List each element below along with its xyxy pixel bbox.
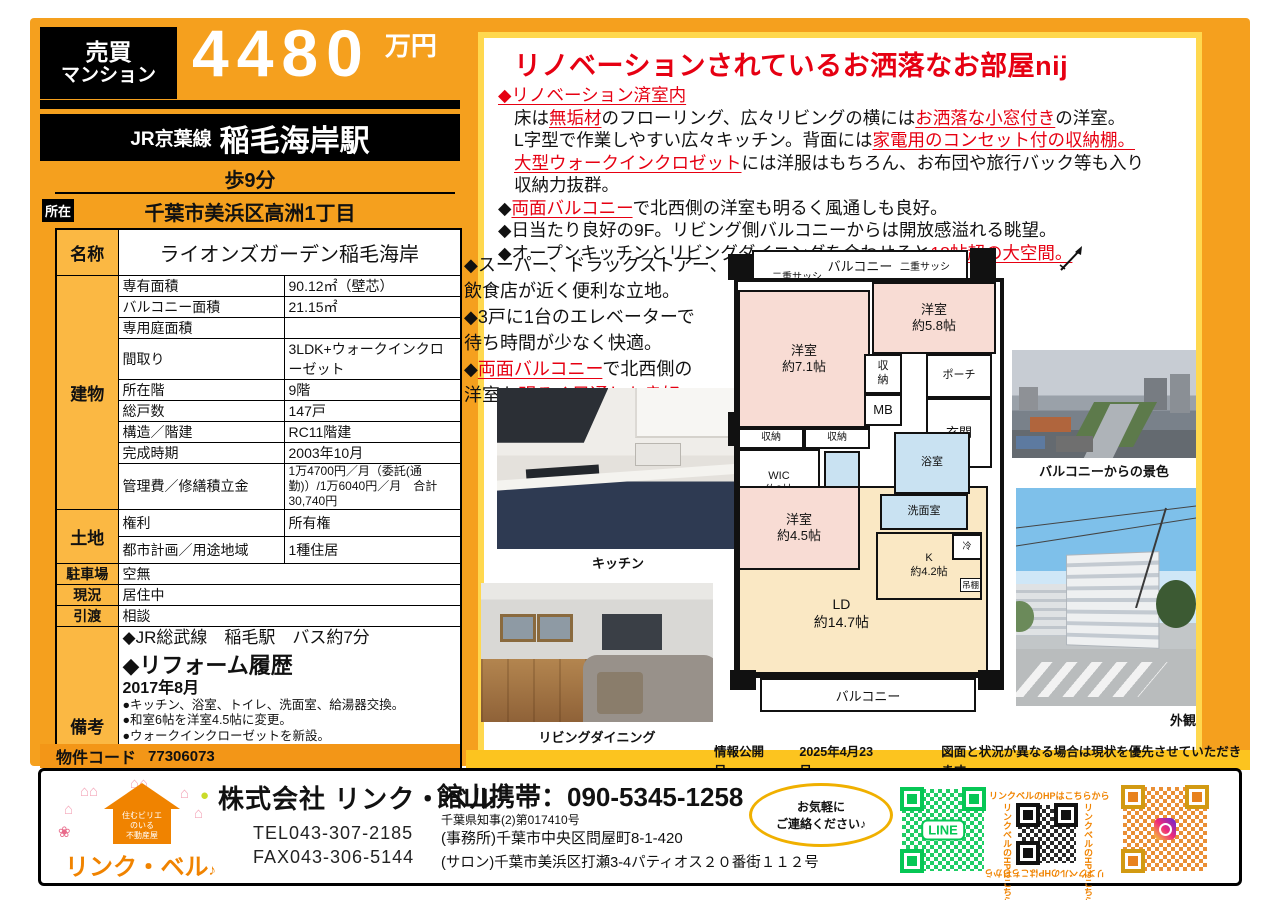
room-label: 洗面室: [908, 505, 941, 519]
property-code-band: 物件コード 77306073: [40, 744, 460, 768]
divider: [40, 100, 460, 109]
room-label: MB: [873, 402, 893, 418]
row-label: 所在階: [118, 379, 284, 400]
address: 千葉市美浜区高洲1丁目: [40, 197, 460, 226]
row-label: 権利: [118, 509, 284, 536]
promo-line: L字型で作業しやすい広々キッチン。背面には家電用のコンセット付の収納棚。: [498, 129, 1186, 152]
property-code-label: 物件コード: [56, 744, 136, 768]
logo-decor: [104, 783, 180, 809]
row-label: 専用庭面積: [118, 317, 284, 338]
side-bullet-line: 待ち時間が少なく快適。: [464, 330, 740, 356]
promo-line: 収納力抜群。: [498, 174, 1186, 197]
power-lines-decor: [1016, 488, 1196, 608]
price-amount: 4480: [192, 20, 371, 86]
row-label: 駐車場: [56, 563, 118, 584]
balcony-view-photo: [1012, 350, 1196, 458]
row-value: 所有権: [284, 509, 461, 536]
row-label: 専有面積: [118, 275, 284, 296]
double-sash-label: 二重サッシ: [898, 258, 952, 273]
room-label: バルコニー: [836, 686, 901, 705]
row-value: 相談: [118, 605, 461, 626]
contact-oval: お気軽に ご連絡ください♪: [749, 783, 893, 847]
text-segment: ◆: [464, 359, 478, 379]
side-bullet-line: ◆両面バルコニーで北西側の: [464, 356, 740, 382]
row-value: 3LDK+ウォークインクローゼット: [284, 338, 461, 379]
row-value: 2003年10月: [284, 442, 461, 463]
qr-finder: [1016, 803, 1040, 827]
row-value: 9階: [284, 379, 461, 400]
photo-decor: [1019, 387, 1037, 411]
hp-qr-text-left: リンクベルのHPはこちらから: [1001, 803, 1014, 900]
text-segment: 飲食店が近く便利な立地。: [464, 281, 680, 301]
room-label: ポーチ: [943, 369, 976, 383]
row-label: 現況: [56, 584, 118, 605]
row-label: 総戸数: [118, 400, 284, 421]
license-number: 千葉県知事(2)第017410号: [441, 811, 580, 828]
promo-line: ◆リノベーション済室内: [498, 84, 1186, 107]
row-label: 管理費／修繕積立金: [118, 463, 284, 509]
text-segment: 両面バルコニー: [478, 359, 603, 379]
room-closet: 収納: [804, 428, 870, 449]
salon-address: (サロン)千葉市美浜区打瀬3-4パティオス２０番街１１２号: [441, 851, 819, 872]
text-segment: 無垢材: [549, 108, 602, 128]
room-label: 収納: [761, 432, 781, 445]
name-label: 名称: [56, 229, 118, 275]
bathroom: 浴室: [894, 432, 970, 494]
room-label: LD 約14.7帖: [814, 595, 869, 631]
qr-finder: [1016, 841, 1040, 865]
side-bullet-line: ◆スーパー、ドラックストアー、: [464, 252, 740, 278]
logo-decor: ⌂⌂: [80, 783, 98, 800]
sale-category-badge: 売買 マンション: [40, 27, 177, 99]
logo-decor: ❀: [58, 823, 71, 841]
text-segment: 床は: [514, 108, 549, 128]
photo-decor: [1030, 417, 1070, 432]
room-closet: 収納: [738, 428, 804, 449]
text-segment: お洒落な小窓付き: [915, 108, 1055, 128]
photo-decor: [537, 614, 573, 642]
qr-finder: [1054, 803, 1078, 827]
logo-name: リンク・ベル♪: [58, 847, 223, 882]
row-value: [284, 317, 461, 338]
land-group-label: 土地: [56, 509, 118, 563]
hp-qr-text-right: リンクベルのHPはこちらから: [1082, 803, 1095, 900]
row-value: 居住中: [118, 584, 461, 605]
logo-decor: ⌂: [194, 805, 203, 822]
text-segment: 両面バルコニー: [511, 198, 632, 218]
floor-plan: バルコニー 二重サッシ 二重サッシ LD 約14.7帖 洋室 約7.1帖 洋室 …: [726, 246, 1016, 724]
hp-qr-text-bottom: リンクベルのHPはこちらから: [989, 867, 1105, 880]
side-bullet-line: 飲食店が近く便利な立地。: [464, 278, 740, 304]
table-row: 建物 専有面積 90.12㎡（壁芯）: [56, 275, 461, 296]
room-label: バルコニー: [828, 256, 893, 275]
text-segment: ◆: [498, 198, 511, 218]
price: 4480 万円: [192, 20, 437, 86]
row-value: 空無: [118, 563, 461, 584]
exterior-photo: [1016, 488, 1196, 706]
mobile-number: 館山携帯：090-5345-1258: [437, 777, 743, 814]
remark-line: ●ウォークインクローゼットを新設。: [123, 729, 457, 745]
walk-time: 歩9分: [40, 164, 460, 193]
porch: ポーチ: [926, 354, 992, 398]
table-row: 現況居住中: [56, 584, 461, 605]
room-label: 洋室 約7.1帖: [782, 343, 826, 376]
flyer-page: 売買 マンション 4480 万円 JR京葉線 稲毛海岸駅 歩9分 所在 千葉市美…: [0, 0, 1280, 900]
table-row: 引渡相談: [56, 605, 461, 626]
hp-qr-code: [1016, 803, 1078, 865]
photo-decor: [497, 388, 608, 443]
text-segment: の洋室。: [1055, 108, 1125, 128]
logo-decor: ⌂: [180, 785, 189, 802]
row-label: 引渡: [56, 605, 118, 626]
row-label: 都市計画／用途地域: [118, 536, 284, 563]
kitchen-caption: キッチン: [497, 553, 739, 572]
hp-qr-text-top: リンクベルのHPはこちらから: [989, 789, 1105, 802]
rail-line: JR京葉線: [130, 124, 211, 151]
balcony-bottom: バルコニー: [760, 678, 976, 712]
station-name: 稲毛海岸駅: [220, 116, 370, 160]
plan-pillar: [978, 670, 1004, 690]
station-bar: JR京葉線 稲毛海岸駅: [40, 114, 460, 161]
room-label: 収 納: [878, 360, 889, 388]
price-unit: 万円: [385, 26, 437, 63]
row-value: 1種住居: [284, 536, 461, 563]
row-value: 90.12㎡（壁芯）: [284, 275, 461, 296]
text-segment: 待ち時間が少なく快適。: [464, 333, 662, 353]
spec-table: 名称 ライオンズガーデン稲毛海岸 建物 専有面積 90.12㎡（壁芯） バルコニ…: [55, 228, 462, 827]
photo-decor: [1016, 436, 1045, 449]
room-label: 洋室 約4.5帖: [777, 512, 821, 545]
instagram-icon: [1154, 818, 1176, 840]
qr-finder: [1121, 785, 1145, 809]
promo-line: ◆両面バルコニーで北西側の洋室も明るく風通しも良好。: [498, 197, 1186, 220]
fridge-space: 冷: [952, 534, 982, 560]
washroom: 洗面室: [880, 494, 968, 530]
logo-house-text: 住むビリエ のいる 不動産屋: [113, 809, 171, 844]
promo-side-bullets: ◆スーパー、ドラックストアー、 飲食店が近く便利な立地。 ◆3戸に1台のエレベー…: [464, 252, 740, 408]
promo-line: 大型ウォークインクロゼットには洋服はもちろん、お布団や旅行バック等も入り: [498, 152, 1186, 175]
room-bedroom-71: 洋室 約7.1帖: [738, 290, 870, 428]
camera-lens-decor: [1159, 823, 1172, 836]
line-qr-code: LINE: [900, 787, 986, 873]
company-logo: ⌂ ⌂⌂ ⌂⌂ ⌂ ⌂ ❀ ● 住むビリエ のいる 不動産屋 リンク・ベル♪: [58, 775, 223, 883]
qr-finder: [962, 787, 986, 811]
remark-line: ◆リフォーム履歴: [123, 653, 457, 679]
table-row: 駐車場空無: [56, 563, 461, 584]
text-segment: には洋服はもちろん、お布団や旅行バック等も入り: [742, 153, 1145, 173]
remark-line: ◆JR総武線 稲毛駅 バス約7分: [123, 627, 457, 649]
building-group-label: 建物: [56, 275, 118, 509]
table-row: 土地 権利 所有権: [56, 509, 461, 536]
text-segment: L字型で作業しやすい広々キッチン。背面には: [514, 130, 873, 150]
instagram-qr-code: [1121, 785, 1209, 873]
remark-line: 2017年8月: [123, 679, 457, 698]
plan-pillar: [730, 670, 756, 690]
living-photo: [481, 583, 713, 722]
tel-number: TEL043-307-2185: [253, 823, 413, 844]
plan-pillar: [970, 248, 996, 278]
room-label: 洋室 約5.8帖: [912, 302, 956, 335]
room-bedroom-58: 洋室 約5.8帖: [872, 282, 996, 354]
promo-line: 床は無垢材のフローリング、広々リビングの横にはお洒落な小窓付きの洋室。: [498, 107, 1186, 130]
promo-line: ◆日当たり良好の9F。リビング側バルコニーからは開放感溢れる眺望。: [498, 219, 1186, 242]
exterior-caption: 外観: [1016, 710, 1196, 729]
photo-decor: [635, 443, 681, 466]
living-caption: リビングダイニング: [481, 727, 713, 746]
photo-decor: [500, 614, 536, 642]
qr-finder: [1121, 849, 1145, 873]
row-value: 21.15㎡: [284, 296, 461, 317]
row-label: 構造／階建: [118, 421, 284, 442]
room-label: K 約4.2帖: [910, 552, 947, 580]
row-value: 1万4700円／月（委託(通勤)）/1万6040円／月 合計30,740円: [284, 463, 461, 509]
row-label: 完成時期: [118, 442, 284, 463]
divider: [55, 192, 455, 194]
compass-icon: [1056, 244, 1086, 274]
balcony-view-caption: バルコニーからの景色: [1012, 461, 1196, 480]
room-label: 浴室: [921, 456, 943, 470]
kitchen-photo: [497, 388, 739, 549]
photo-decor: [597, 672, 643, 714]
fax-number: FAX043-306-5144: [253, 847, 414, 868]
office-address: (事務所)千葉市中央区問屋町8-1-420: [441, 827, 683, 848]
room-bedroom-45: 洋室 約4.5帖: [738, 486, 860, 570]
logo-note: ♪: [209, 862, 217, 879]
text-segment: で北西側の: [602, 359, 692, 379]
text-segment: 家電用のコンセット付の収納棚。: [873, 130, 1136, 150]
logo-house: 住むビリエ のいる 不動産屋: [104, 783, 180, 844]
row-value: RC11階建: [284, 421, 461, 442]
photo-decor: [1056, 436, 1093, 451]
footer: ⌂ ⌂⌂ ⌂⌂ ⌂ ⌂ ❀ ● 住むビリエ のいる 不動産屋 リンク・ベル♪ 株…: [38, 768, 1242, 886]
text-segment: ◆3戸に1台のエレベーターで: [464, 307, 695, 327]
text-segment: で北西側の洋室も明るく風通しも良好。: [633, 198, 948, 218]
text-segment: 収納力抜群。: [514, 175, 619, 195]
qr-finder: [1185, 785, 1209, 809]
promo-description: ◆リノベーション済室内 床は無垢材のフローリング、広々リビングの横にはお洒落な小…: [498, 84, 1186, 264]
side-bullet-line: ◆3戸に1台のエレベーターで: [464, 304, 740, 330]
text-segment: ◆リノベーション済室内: [498, 85, 686, 105]
line-logo: LINE: [921, 820, 965, 841]
property-name: ライオンズガーデン稲毛海岸: [118, 229, 461, 275]
category-line2: マンション: [61, 65, 156, 87]
promo-headline: リノベーションされているお洒落なお部屋nij: [514, 44, 1068, 83]
remark-line: ●キッチン、浴室、トイレ、洗面室、給湯器交換。: [123, 698, 457, 714]
text-segment: 大型ウォークインクロゼット: [514, 153, 742, 173]
hanging-shelf-label: 吊棚: [960, 578, 981, 592]
info-strip: 情報公開日 2025年4月23日 図面と状況が異なる場合は現状を優先させていただ…: [466, 750, 1250, 770]
photo-decor: [635, 388, 739, 438]
logo-name-text: リンク・ベル: [65, 854, 209, 881]
row-label: バルコニー面積: [118, 296, 284, 317]
photo-decor: [602, 614, 662, 650]
photo-decor: [1170, 374, 1190, 413]
row-label: 間取り: [118, 338, 284, 379]
table-row: 名称 ライオンズガーデン稲毛海岸: [56, 229, 461, 275]
plan-pillar: [728, 254, 752, 280]
category-line1: 売買: [86, 39, 132, 65]
room-label: 冷: [962, 541, 971, 552]
qr-finder: [900, 849, 924, 873]
room-closet: 収 納: [864, 354, 902, 394]
qr-finder: [900, 787, 924, 811]
property-code-value: 77306073: [148, 748, 215, 765]
meter-box: MB: [864, 394, 902, 426]
row-value: 147戸: [284, 400, 461, 421]
logo-decor: ⌂: [64, 801, 73, 818]
remark-line: ●和室6帖を洋室4.5帖に変更。: [123, 713, 457, 729]
text-segment: のフローリング、広々リビングの横には: [602, 108, 916, 128]
plan-pillar: [728, 412, 740, 446]
text-segment: ◆日当たり良好の9F。リビング側バルコニーからは開放感溢れる眺望。: [498, 220, 1057, 240]
room-label: 収納: [827, 432, 847, 445]
text-segment: ◆スーパー、ドラックストアー、: [464, 255, 728, 275]
logo-decor: ●: [200, 787, 209, 804]
